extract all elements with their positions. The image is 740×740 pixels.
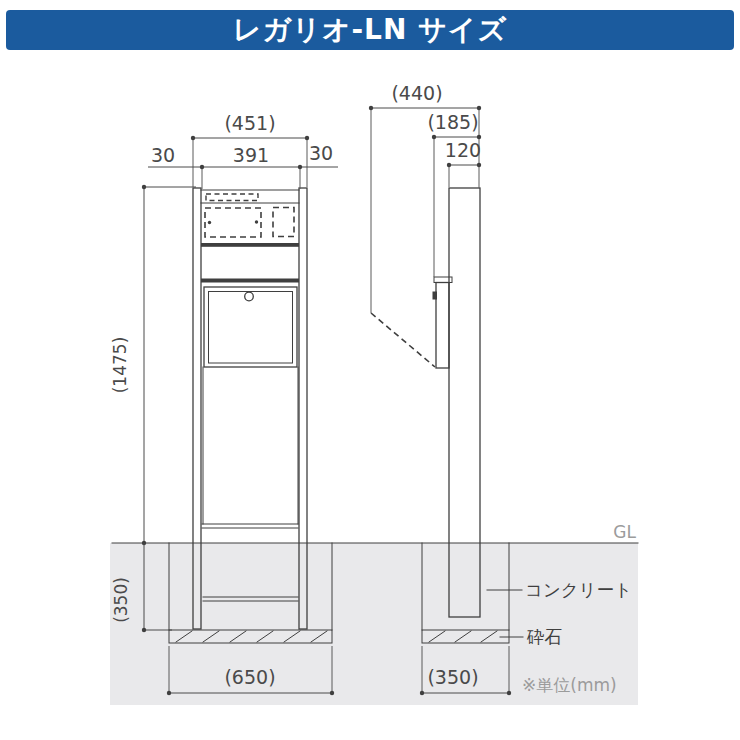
dim-label-30-left: 30 — [151, 144, 175, 166]
top-rail — [201, 190, 299, 203]
dim-label-350-left: (350) — [111, 577, 131, 623]
dim-label-451: (451) — [224, 112, 275, 134]
concrete-label: コンクリート — [525, 580, 632, 600]
dim-label-391: 391 — [233, 144, 269, 166]
dim-height: (1475) — [110, 185, 196, 545]
unit-note: ※単位(mm) — [522, 675, 617, 695]
door-knob — [245, 292, 254, 301]
dim-depth-door-open: (440) — [369, 82, 481, 188]
intercom-cutout-dashed — [205, 208, 261, 237]
dim-depth-with-box: (185) — [427, 111, 481, 277]
dim-label-350-side: (350) — [427, 666, 478, 688]
dim-label-1475: (1475) — [110, 337, 130, 394]
dim-inner-width: 30 391 30 — [148, 142, 338, 189]
dimension-drawing: (451) 30 391 30 (1475) — [0, 0, 740, 740]
dim-label-120: 120 — [445, 139, 481, 161]
mailbox-profile — [433, 277, 453, 368]
dim-post-depth: 120 — [445, 139, 481, 187]
mail-slot-hidden — [206, 194, 258, 201]
dim-label-650: (650) — [224, 666, 275, 688]
panel-bottom-band — [201, 243, 299, 247]
door-open-swing-dashed — [371, 313, 435, 367]
mount-pins — [208, 220, 258, 224]
dim-label-185: (185) — [427, 111, 478, 133]
mailbox-door — [204, 287, 297, 367]
page: レガリオ-LN サイズ — [0, 0, 740, 740]
dim-label-30-right: 30 — [309, 142, 333, 164]
crushed-stone-label: 砕石 — [526, 627, 562, 647]
door-latch — [433, 292, 438, 300]
nameplate-cutout-dashed — [273, 208, 294, 237]
ground-level-label: GL — [613, 522, 636, 542]
door-top-band — [201, 279, 299, 283]
dim-label-440: (440) — [391, 82, 442, 104]
